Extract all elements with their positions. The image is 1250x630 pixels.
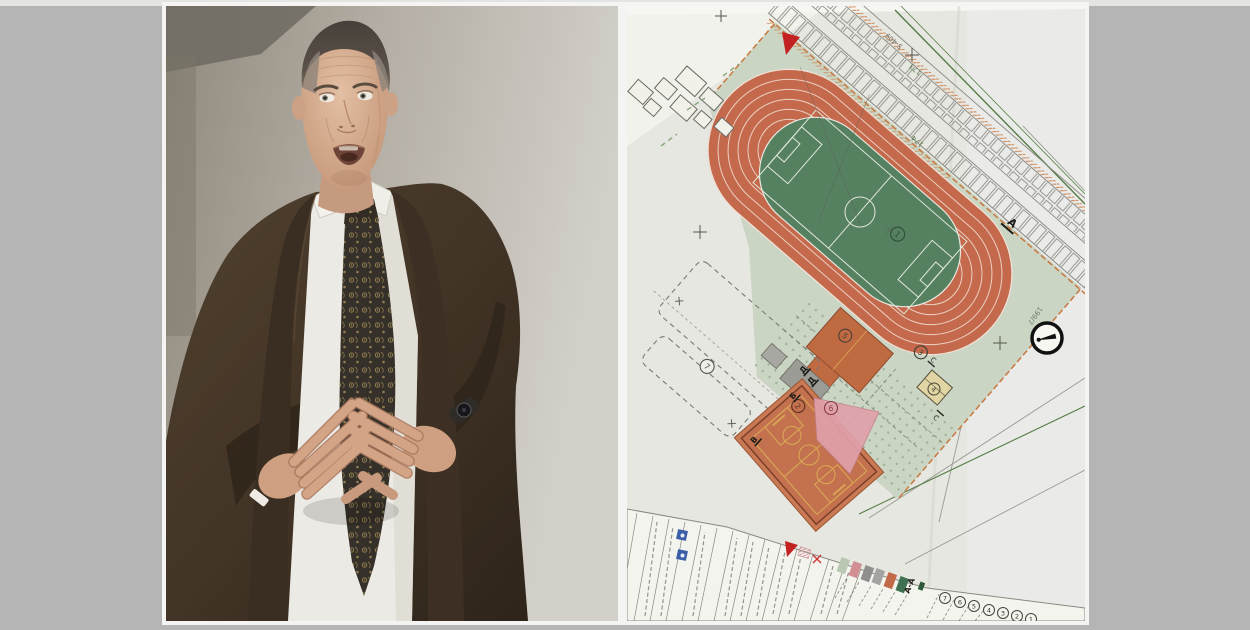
portrait-photo <box>166 6 618 621</box>
ear-left <box>292 96 306 120</box>
svg-text:6: 6 <box>829 404 834 413</box>
svg-text:7: 7 <box>943 595 947 603</box>
svg-text:2: 2 <box>1015 613 1019 621</box>
chin-shading <box>331 170 367 186</box>
site-plan-art: С С 1 3 5 <box>627 6 1085 621</box>
svg-text:4: 4 <box>987 607 991 615</box>
ear-right <box>384 92 398 116</box>
svg-text:3: 3 <box>1001 610 1005 618</box>
svg-text:1: 1 <box>1029 616 1033 622</box>
north-arrow-icon <box>1032 323 1062 353</box>
portrait-art <box>166 6 618 621</box>
svg-text:5: 5 <box>972 603 976 611</box>
svg-text:6: 6 <box>958 599 962 607</box>
site-plan-photo: С С 1 3 5 <box>627 6 1085 621</box>
screenshot-canvas: С С 1 3 5 <box>0 0 1250 630</box>
wall-shadow-left <box>166 56 196 336</box>
